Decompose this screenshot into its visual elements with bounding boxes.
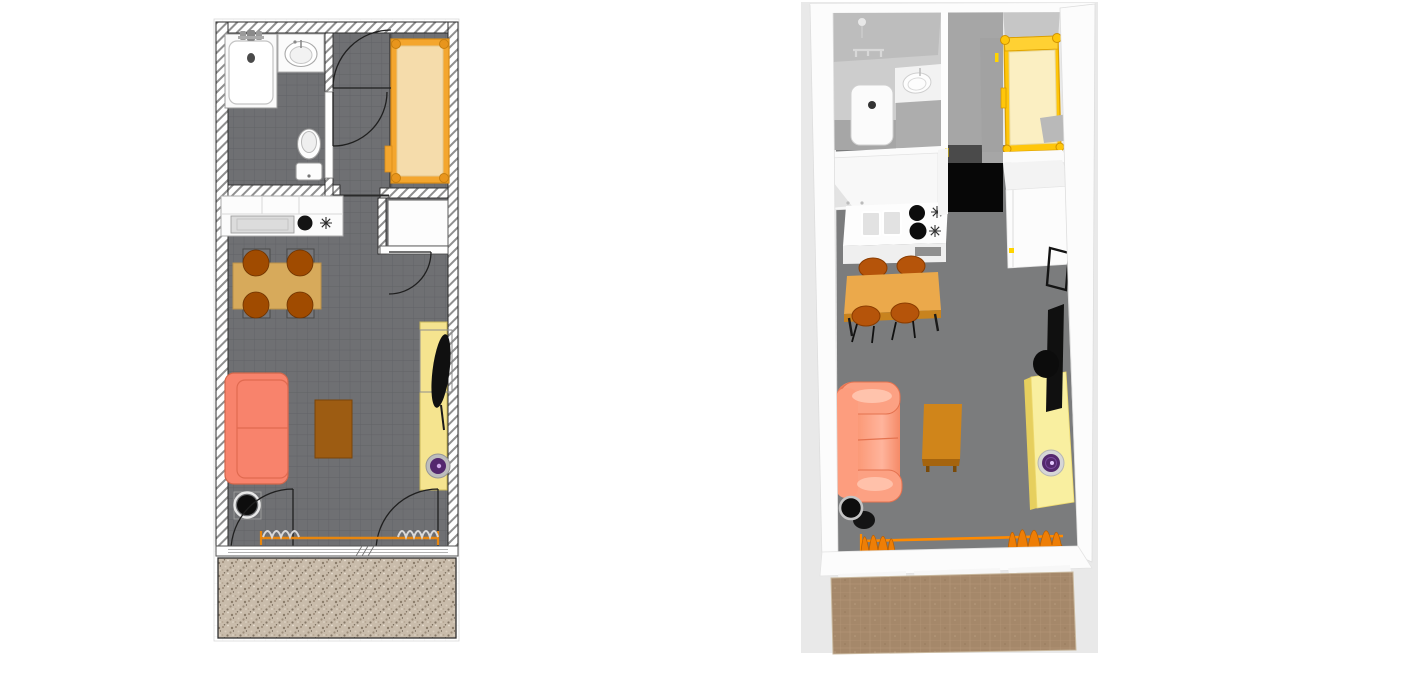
bed-mattress xyxy=(397,46,443,176)
view-3d xyxy=(801,2,1098,654)
coffee-edge-3d xyxy=(922,459,960,466)
sofa-highlight xyxy=(857,477,893,491)
chair xyxy=(287,250,313,276)
bed-rail-tab xyxy=(1001,88,1006,108)
chair-3d xyxy=(891,303,919,323)
bedroom-floor-strip xyxy=(980,38,1003,152)
wall-bath-hall-3d xyxy=(941,8,948,152)
oven-3d xyxy=(915,247,941,256)
plan-2d xyxy=(214,19,459,641)
sink-basin-3d xyxy=(862,212,880,236)
floorplan-canvas xyxy=(0,0,1416,673)
page xyxy=(0,0,1416,673)
cabinet-knob xyxy=(846,201,849,204)
toilet-seat xyxy=(302,132,317,153)
bed-side-tab xyxy=(385,146,392,172)
window-band xyxy=(216,546,458,556)
stock-pot xyxy=(298,216,313,231)
burner-3d xyxy=(909,205,925,221)
coffee-leg xyxy=(953,466,957,472)
wardrobe-front-shelf xyxy=(380,246,448,254)
cabinet-knob xyxy=(860,201,863,204)
chair-3d xyxy=(852,306,880,326)
vinyl-label xyxy=(437,464,441,468)
wardrobe xyxy=(388,200,448,246)
chair xyxy=(243,250,269,276)
kitchen-sink xyxy=(231,216,294,233)
wardrobe-top-3d xyxy=(1003,160,1072,190)
bathroom-floor-shade xyxy=(896,98,941,148)
terrace-deck-3d xyxy=(831,572,1076,654)
washbasin-bowl xyxy=(290,47,312,64)
coffee-top-3d xyxy=(922,404,962,459)
hall-floor-shadow xyxy=(943,145,982,163)
wall-bathroom-right-lower xyxy=(325,178,333,196)
plant-pot xyxy=(237,495,257,515)
sofa-3d xyxy=(836,382,902,502)
wardrobe-front-3d xyxy=(1006,186,1072,268)
wall-bathroom-right-upper xyxy=(325,33,333,92)
vinyl-label-3d xyxy=(1050,461,1054,465)
bathtub-faucet-icon xyxy=(238,30,264,41)
bathtub-drain xyxy=(247,53,255,63)
sofa-backrest xyxy=(836,388,858,498)
coffee-table-3d xyxy=(922,404,962,472)
headboard-3d xyxy=(1004,36,1058,51)
wall-top-3d xyxy=(810,3,1095,13)
washbasin-knob xyxy=(293,40,296,43)
burner-3d xyxy=(910,223,927,240)
bedroom-far-wall-face xyxy=(1003,10,1060,40)
wall-bathroom-bottom xyxy=(228,185,340,196)
bathtub-drain-3d xyxy=(868,101,876,109)
wall-bedroom-bottom xyxy=(380,188,448,198)
tv-base-3d xyxy=(1033,350,1059,378)
bathroom-far-wall-face xyxy=(833,10,941,62)
coffee-table xyxy=(315,400,352,458)
sofa-highlight xyxy=(852,389,892,403)
chair xyxy=(287,292,313,318)
bathtub-basin xyxy=(229,41,273,104)
coffee-leg xyxy=(926,466,930,472)
door-handle-yellow xyxy=(995,53,999,62)
chair xyxy=(243,292,269,318)
kitchen-3d xyxy=(828,146,948,264)
bathroom-door-jamb xyxy=(325,92,333,178)
window-wall xyxy=(216,546,458,556)
wardrobe-handle-3d xyxy=(1009,248,1014,253)
toilet-button xyxy=(307,174,310,177)
terrace-deck xyxy=(218,558,456,638)
burner-icon-3d xyxy=(929,225,941,237)
black-tile-3d xyxy=(943,163,1003,212)
bathtub-3d xyxy=(851,85,893,145)
kitchen-side-wall xyxy=(938,148,948,216)
burner-icon xyxy=(320,217,332,229)
kitchen xyxy=(221,196,343,236)
sink-basin-3d xyxy=(883,211,901,235)
shower-head-3d xyxy=(858,18,867,27)
plant-pot-3d xyxy=(840,497,862,519)
